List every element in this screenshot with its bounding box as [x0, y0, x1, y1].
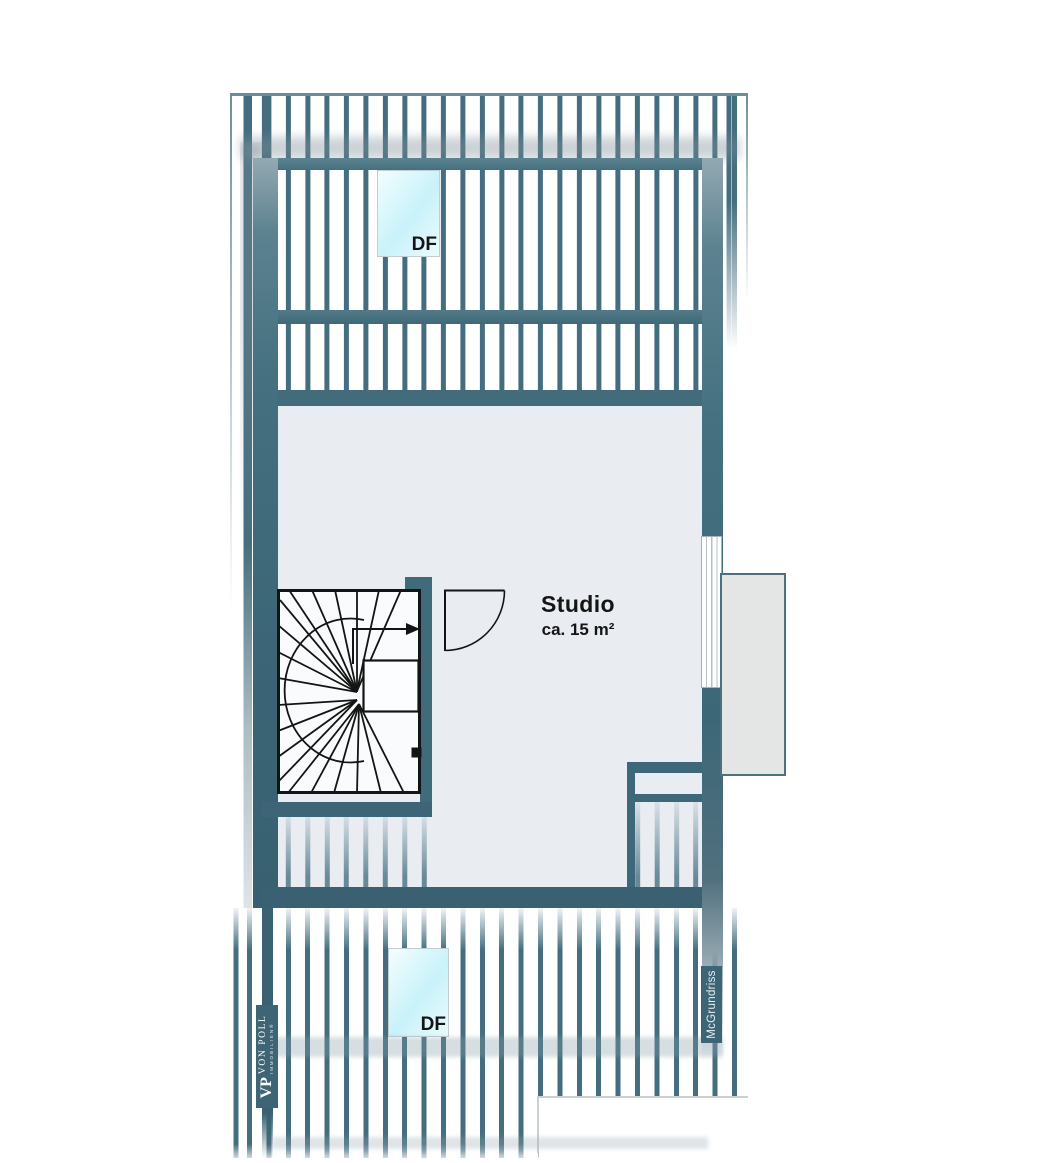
logo-brand-name: VON POLL [259, 1015, 269, 1075]
room-area: ca. 15 m² [498, 620, 658, 640]
skylight-label-top: DF [412, 235, 437, 256]
lower-roof-shadow-band [262, 1037, 723, 1057]
studio-bottom-wall [262, 887, 702, 908]
rafter-patch-knee-wall [635, 802, 702, 887]
chimney-wall-lower [635, 794, 702, 802]
skylight-label-bottom: DF [421, 1015, 446, 1036]
chimney-wall-left [627, 762, 635, 887]
plan-outline-right [746, 93, 748, 303]
plan-outline-top [230, 93, 748, 96]
collar-beam-wall [253, 310, 723, 324]
floor-plan-canvas: DF DF [0, 0, 1060, 1163]
roof-rafters-bottom [230, 908, 748, 1158]
stair-bottom-wall [262, 802, 432, 817]
door-jamb-stub-wall [405, 577, 432, 591]
watermark-text: McGrundriss [706, 970, 718, 1038]
skylight-window-bottom: DF [388, 948, 449, 1037]
vonpoll-logo: VP VON POLL IMMOBILIEN® [256, 1005, 278, 1108]
stair-side-wall [420, 577, 432, 817]
ridge-wall-top [253, 158, 723, 170]
skylight-window-top: DF [377, 170, 440, 257]
notch-outline-horizontal [537, 1096, 748, 1098]
chimney-wall-upper [627, 762, 702, 773]
logo-division: IMMOBILIEN® [270, 1023, 275, 1074]
outer-wall-left [253, 158, 278, 908]
mcgrundriss-watermark: McGrundriss [701, 966, 722, 1043]
window-right-wall [701, 536, 722, 688]
balcony-outline [720, 573, 786, 776]
studio-top-wall [253, 390, 723, 406]
rafter-patch-below-stairs [278, 817, 432, 887]
roof-rafters-right-margin [723, 95, 748, 360]
bottom-edge-shadow-band [272, 1137, 708, 1149]
room-label: Studio ca. 15 m² [498, 592, 658, 640]
plan-outline-left [230, 93, 232, 613]
wall-shadow-top [240, 137, 740, 159]
room-name: Studio [498, 592, 658, 617]
logo-monogram: VP [259, 1077, 275, 1098]
